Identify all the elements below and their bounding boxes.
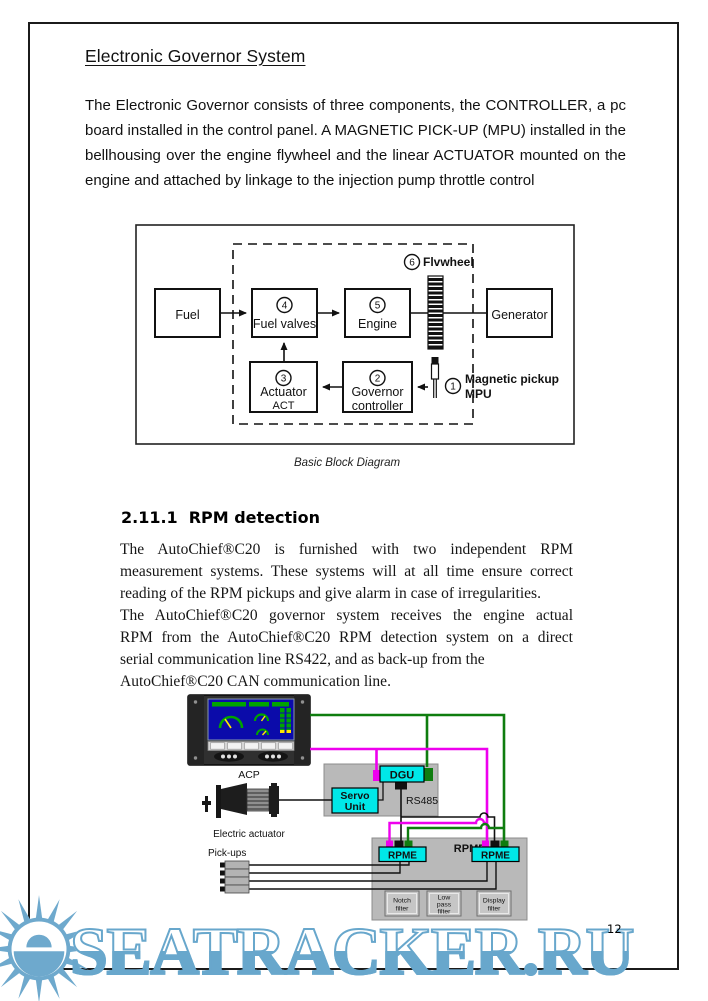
- svg-text:filter: filter: [396, 906, 410, 913]
- actuator-sub-label: ACT: [273, 400, 295, 412]
- rpme1-magenta-port: [386, 841, 393, 848]
- notch-filter-label: Notch: [393, 898, 411, 905]
- document-heading: Electronic Governor System: [85, 46, 305, 67]
- watermark: SEATRACKER.RU: [70, 916, 633, 986]
- text-line: bellhousing over the engine flywheel and…: [85, 143, 626, 168]
- rpme1-black-port: [395, 841, 404, 848]
- electric-actuator-icon: [202, 783, 279, 818]
- acp-panel-icon: [188, 695, 310, 765]
- dgu-magenta-port: [373, 770, 380, 781]
- basic-block-diagram: 4 5 3 2 6 1 Fuel Fuel valves Engine Gene…: [135, 224, 575, 446]
- display-filter-label: Display: [483, 898, 506, 905]
- section-number: 2.11.1: [121, 508, 178, 527]
- rpme2-black-port: [491, 841, 500, 848]
- pickup-connectors-icon: [220, 861, 249, 893]
- text-line: serial communication line RS422, and as …: [120, 649, 573, 671]
- rs485-label: RS485: [406, 795, 438, 807]
- text-line: The AutoChief®C20 governor system receiv…: [120, 605, 573, 627]
- text-line: The AutoChief®C20 is furnished with two …: [120, 539, 573, 561]
- rpme-left-label: RPME: [388, 851, 417, 862]
- panel-buttons: [211, 743, 293, 750]
- text-line: engine and attached by linkage to the in…: [85, 168, 626, 193]
- flywheel-label: Flvwheel: [423, 255, 474, 269]
- actuator-label: Actuator: [260, 385, 307, 399]
- bar-meter-icon: [287, 708, 292, 733]
- number-3: 3: [281, 374, 287, 385]
- number-1: 1: [450, 382, 456, 393]
- mpu-label: Magnetic pickup: [465, 372, 559, 386]
- engine-label: Engine: [358, 317, 397, 331]
- pickups-label: Pick-ups: [208, 848, 246, 859]
- rpm-paragraph-1: The AutoChief®C20 is furnished with two …: [120, 539, 573, 605]
- mpu-sub-label: MPU: [465, 387, 492, 401]
- number-2: 2: [375, 374, 381, 385]
- text-line: board installed in the control panel. A …: [85, 118, 626, 143]
- flywheel-icon: [428, 276, 443, 349]
- page-number: 12: [607, 922, 622, 936]
- electric-actuator-label: Electric actuator: [213, 829, 285, 840]
- number-5: 5: [375, 301, 381, 312]
- rpme1-green-port: [405, 841, 413, 848]
- lowpass-filter-label: Low: [438, 895, 451, 902]
- section-heading: 2.11.1 RPM detection: [121, 508, 320, 527]
- text-line: RPM from the AutoChief®C20 RPM detection…: [120, 627, 573, 649]
- dgu-black-port: [395, 782, 407, 790]
- rpm-detection-diagram: ACP Electric actuator: [185, 690, 541, 926]
- governor-sub-label: controller: [352, 399, 403, 413]
- rpme-right-label: RPME: [481, 851, 510, 862]
- dgu-green-port: [424, 768, 433, 781]
- acp-label: ACP: [238, 769, 260, 781]
- rpme2-green-port: [501, 841, 509, 848]
- rpme2-magenta-port: [482, 841, 489, 848]
- text-line: reading of the RPM pickups and give alar…: [120, 583, 573, 605]
- section-title: RPM detection: [189, 508, 320, 527]
- fuel-valves-label: Fuel valves: [253, 317, 316, 331]
- svg-text:pass: pass: [437, 902, 452, 909]
- governor-label: Governor: [351, 385, 403, 399]
- dgu-label: DGU: [390, 770, 415, 782]
- text-line: The Electronic Governor consists of thre…: [85, 93, 626, 118]
- number-6: 6: [409, 258, 415, 269]
- fuel-label: Fuel: [175, 308, 199, 322]
- svg-text:filter: filter: [488, 906, 502, 913]
- diagram-caption: Basic Block Diagram: [135, 457, 559, 469]
- servo-label-2: Unit: [345, 801, 366, 813]
- generator-label: Generator: [491, 308, 547, 322]
- text-line: measurement systems. These systems will …: [120, 561, 573, 583]
- intro-paragraph: The Electronic Governor consists of thre…: [85, 93, 626, 193]
- bar-meter-icon: [280, 708, 285, 733]
- number-4: 4: [282, 301, 288, 312]
- rpm-paragraph-2: The AutoChief®C20 governor system receiv…: [120, 605, 573, 693]
